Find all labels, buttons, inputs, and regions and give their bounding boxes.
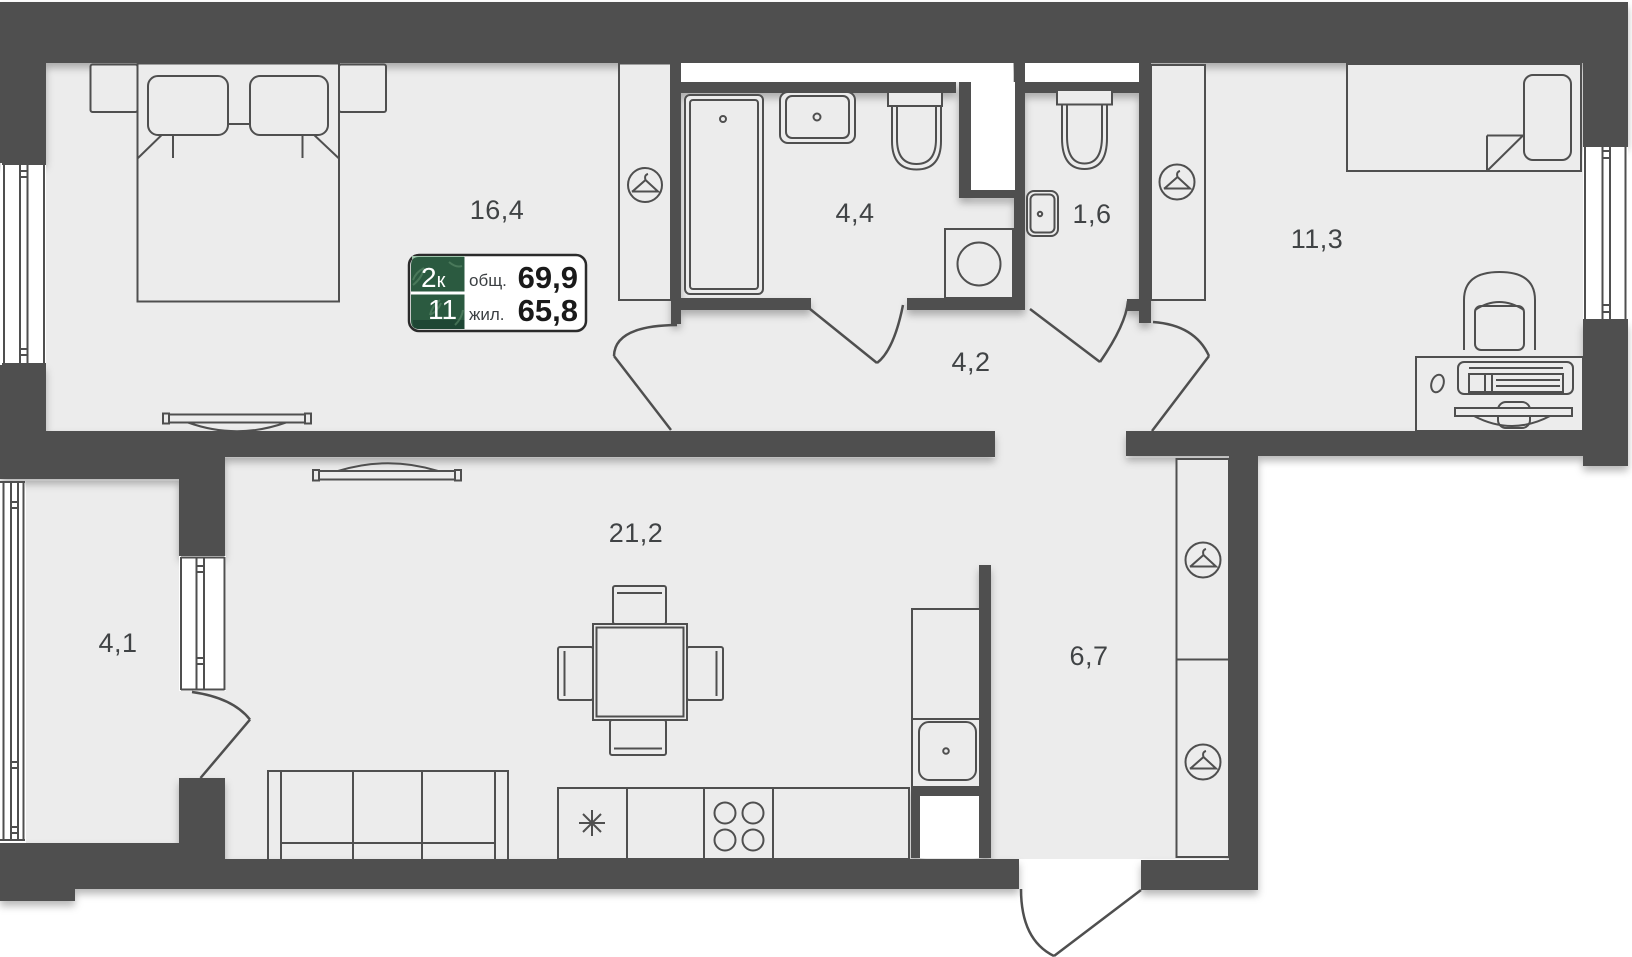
svg-text:1,6: 1,6 [1072,199,1111,229]
svg-text:общ.: общ. [469,271,507,290]
svg-text:жил.: жил. [469,305,505,324]
svg-text:11: 11 [428,294,457,325]
svg-text:65,8: 65,8 [518,293,578,328]
svg-text:4,2: 4,2 [951,347,990,377]
svg-text:4,1: 4,1 [98,628,137,658]
svg-text:11,3: 11,3 [1291,224,1344,254]
svg-text:21,2: 21,2 [609,518,664,548]
svg-text:6,7: 6,7 [1069,641,1108,671]
svg-text:16,4: 16,4 [470,195,525,225]
svg-text:69,9: 69,9 [518,260,578,295]
svg-text:4,4: 4,4 [835,198,874,228]
